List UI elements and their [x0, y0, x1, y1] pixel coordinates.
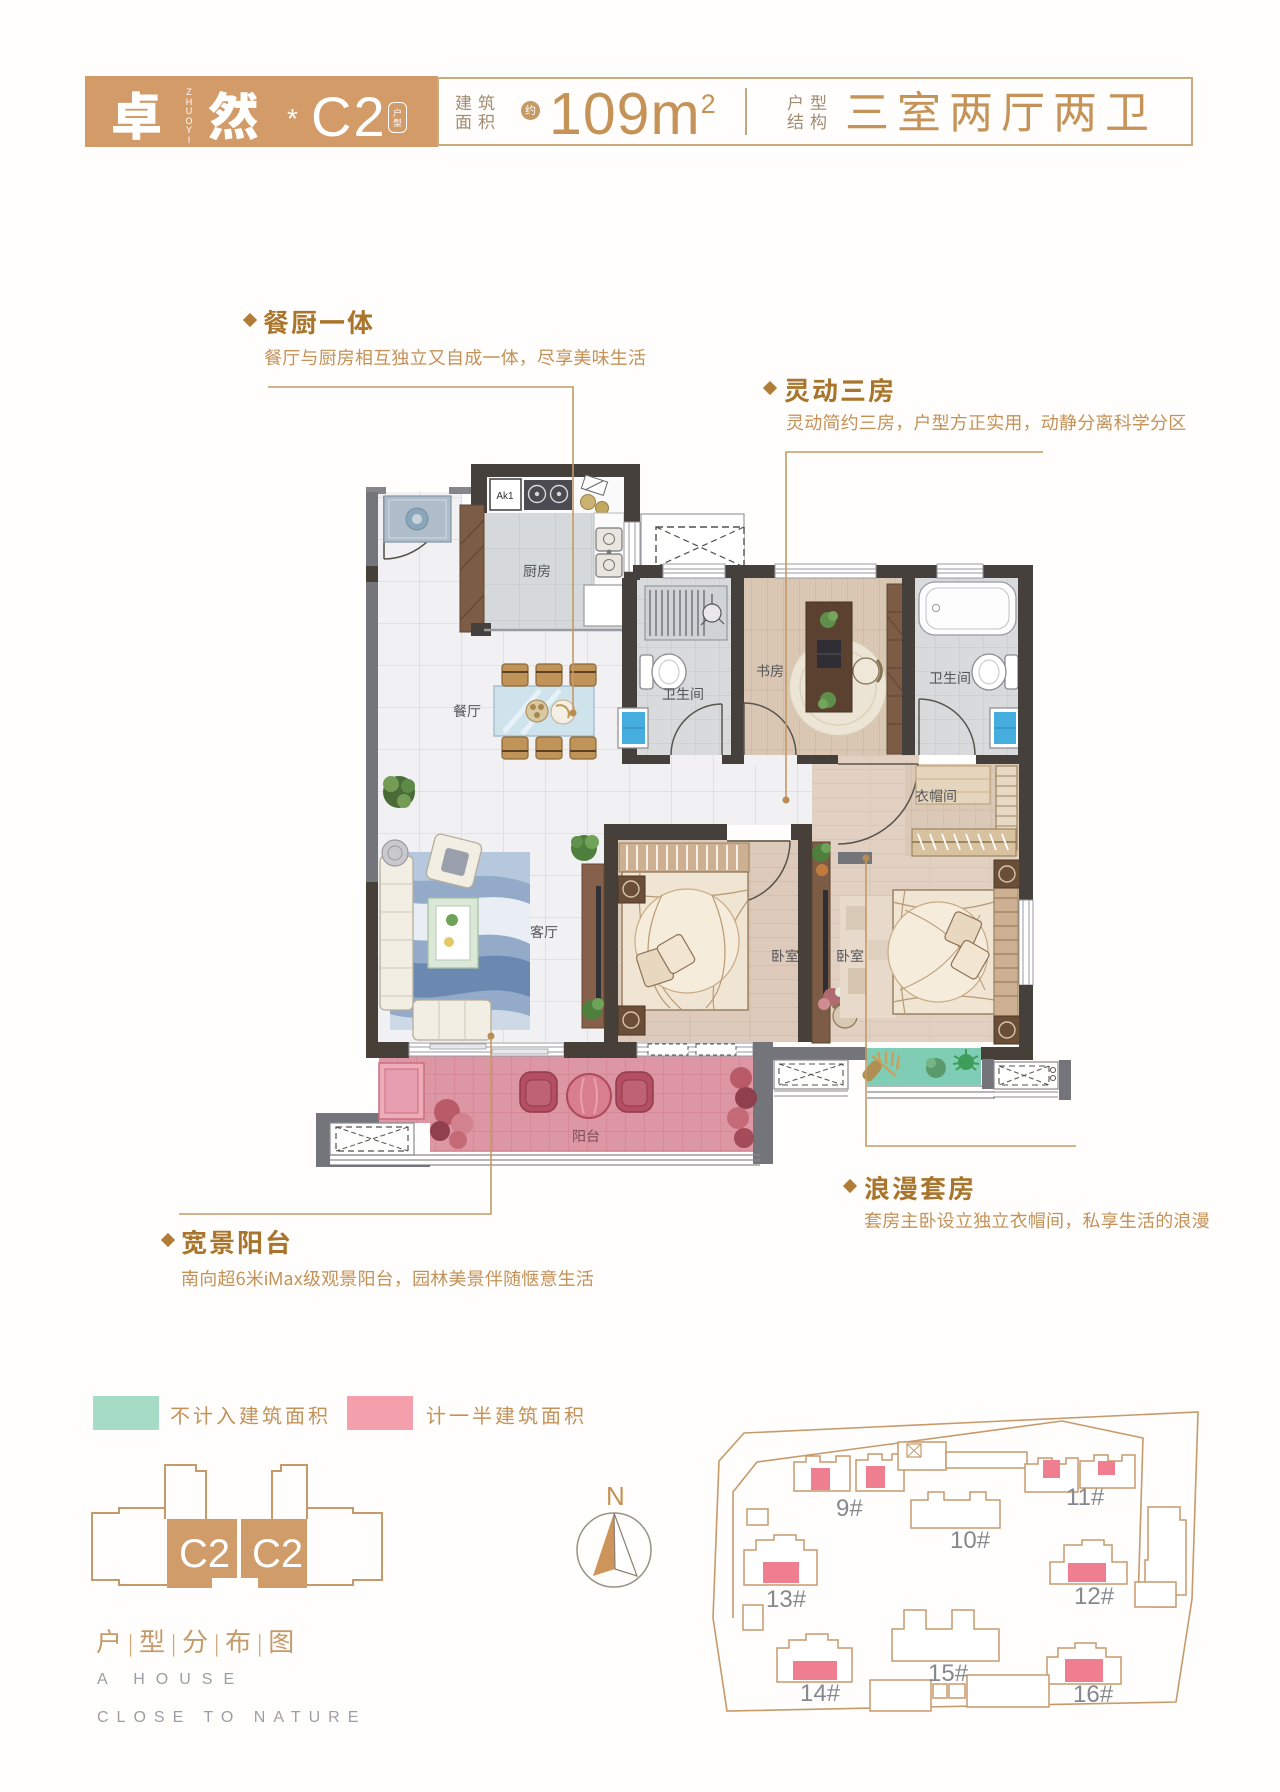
svg-text:厨房: 厨房	[523, 561, 551, 581]
svg-text:C2: C2	[252, 1532, 303, 1576]
svg-text:9#: 9#	[836, 1495, 863, 1522]
svg-text:15#: 15#	[928, 1660, 969, 1687]
svg-text:11#: 11#	[1066, 1484, 1105, 1511]
svg-text:16#: 16#	[1073, 1681, 1114, 1708]
svg-text:13#: 13#	[766, 1586, 807, 1613]
svg-text:餐厅: 餐厅	[453, 701, 481, 721]
svg-text:卫生间: 卫生间	[929, 668, 971, 688]
svg-text:衣帽间: 衣帽间	[915, 786, 957, 806]
svg-text:卫生间: 卫生间	[662, 684, 704, 704]
svg-text:阳台: 阳台	[572, 1126, 600, 1146]
svg-text:N: N	[606, 1481, 625, 1511]
svg-text:C2: C2	[179, 1532, 230, 1576]
svg-text:14#: 14#	[800, 1680, 841, 1707]
svg-text:Ak1: Ak1	[496, 491, 514, 502]
svg-text:10#: 10#	[950, 1527, 991, 1554]
svg-text:书房: 书房	[756, 661, 784, 681]
svg-text:卧室: 卧室	[836, 946, 864, 966]
svg-text:12#: 12#	[1074, 1583, 1115, 1610]
svg-text:卧室: 卧室	[771, 946, 799, 966]
svg-text:客厅: 客厅	[530, 922, 558, 942]
